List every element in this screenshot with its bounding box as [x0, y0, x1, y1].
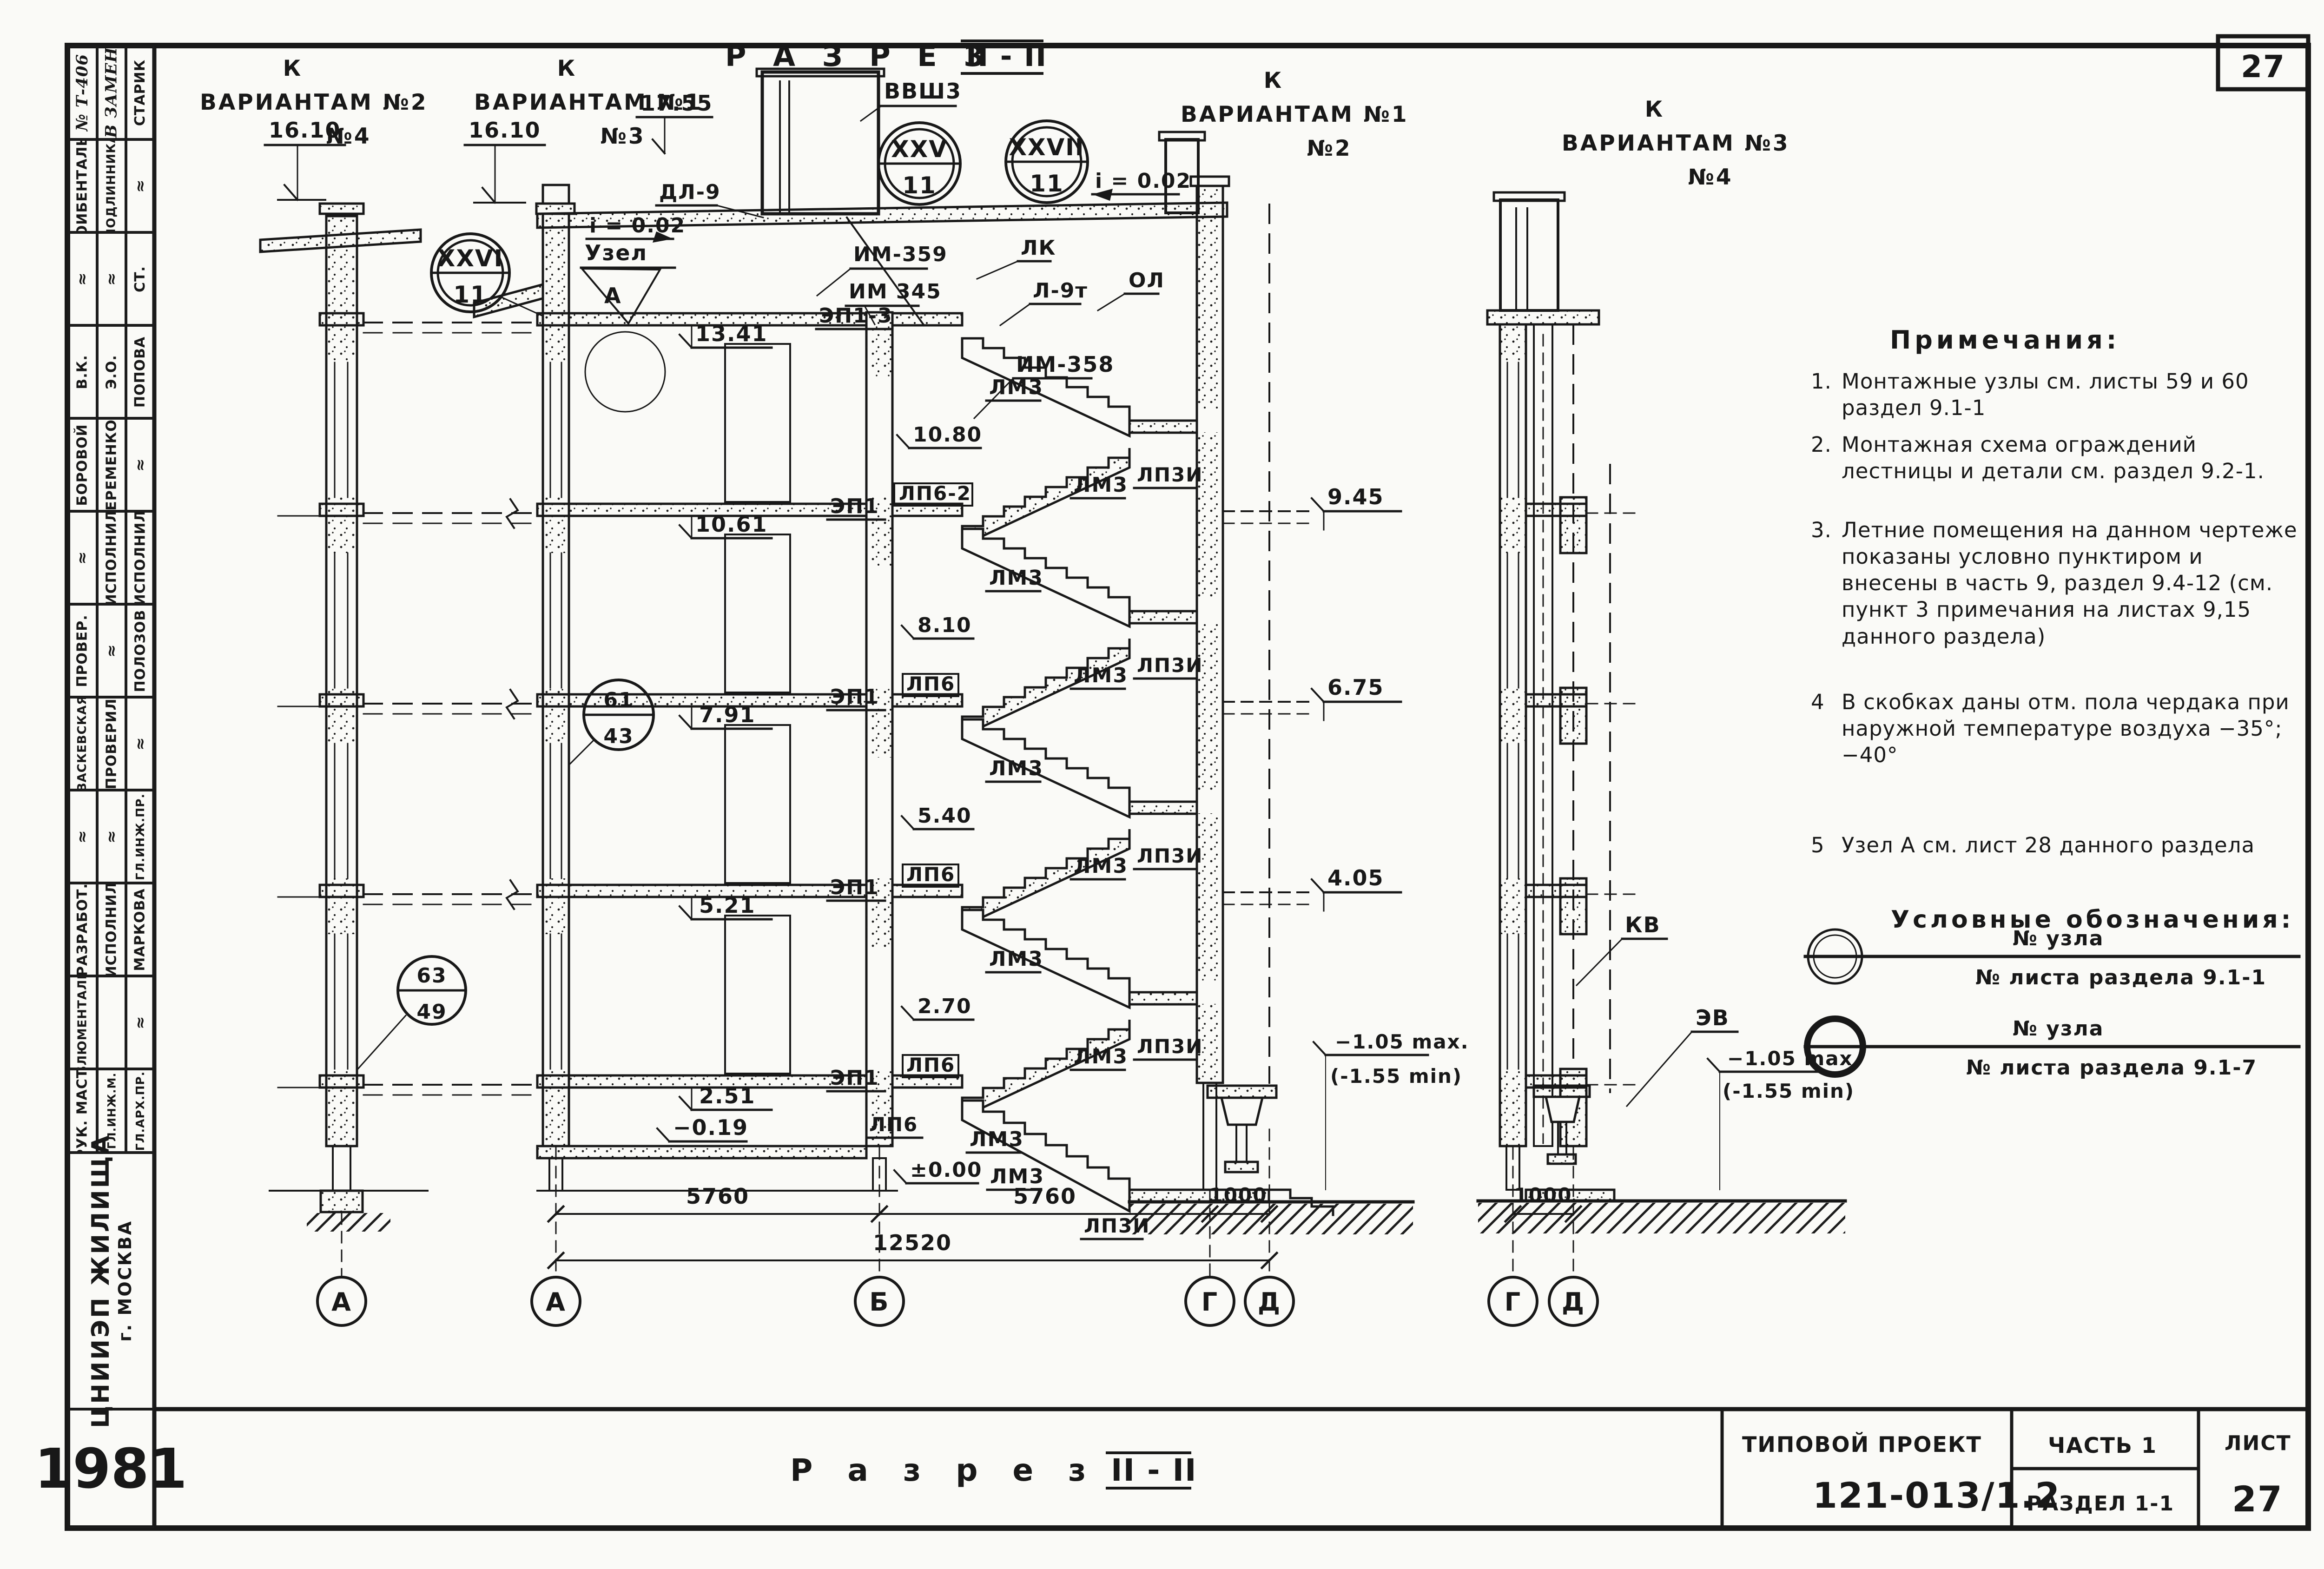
- note-text: Монтажная схема ограждений лестницы и де…: [1842, 431, 2302, 484]
- dim-1000-right: 1000: [1514, 1184, 1572, 1206]
- label-kv: КВ: [1625, 912, 1661, 937]
- stamp-text: ИСПОЛНИЛ: [104, 883, 120, 976]
- stamp-cell: ГЛ.ИНЖ.ПР.: [126, 790, 154, 883]
- stamp-cell: ≈: [97, 604, 126, 697]
- stamp-cell: ИСПОЛНИЛ: [97, 511, 126, 604]
- dim-5760-a: 5760: [686, 1184, 749, 1209]
- stamp-cell: БЛЮМЕНТАЛЬ: [67, 976, 97, 1069]
- variant-b: №2: [1181, 132, 1367, 166]
- stamp-cell: ВАСКЕВСКАЯ: [67, 697, 97, 790]
- elevation-10-61: 10.61: [695, 512, 768, 537]
- midlanding-lp3i-s2: ЛП3И: [1137, 844, 1203, 867]
- note-number: 3.: [1811, 517, 1832, 650]
- label-dl9: ДЛ-9: [659, 180, 721, 204]
- signature: ≈: [102, 830, 121, 844]
- flight-lm3-s2a: ЛМ3: [989, 757, 1043, 780]
- slope-left: i = 0.02: [589, 214, 686, 237]
- stamp-cell: СТ.: [126, 232, 154, 325]
- legend-thin-top: № узла: [2013, 927, 2104, 950]
- variant-b: №4: [200, 120, 386, 154]
- top-title-num: II - II: [966, 39, 1047, 73]
- node-xxvi-sheet: 11: [453, 281, 488, 308]
- elevation-7-91: 7.91: [699, 702, 756, 727]
- dim-1000-main: 1000: [1209, 1184, 1268, 1206]
- landing-lp6-f2: ЛП6: [906, 863, 955, 886]
- stamp-cell: ПОЛОЗОВ: [126, 604, 154, 697]
- sheet-frame: [67, 36, 2308, 1528]
- notes-block: Примечания:: [1811, 325, 2304, 367]
- elevation-9-45: 9.45: [1327, 484, 1384, 509]
- panel-ep1-f3: ЭП1: [830, 685, 879, 709]
- signature: ≈: [131, 737, 150, 751]
- axis-D-main: Д: [1258, 1287, 1281, 1317]
- variant-a: №3: [1744, 131, 1789, 156]
- note-item-3: 3. Летние помещения на данном чертеже по…: [1811, 517, 2302, 650]
- flight-lm3-s3a: ЛМ3: [989, 947, 1043, 971]
- note-number: 2.: [1811, 431, 1832, 484]
- leader-ol: [1098, 294, 1158, 310]
- landing-lp6-f3: ЛП6: [906, 672, 955, 695]
- elevation-mark-16-10-main: [465, 145, 545, 203]
- node-43: 43: [603, 725, 634, 748]
- depth-min-main: (-1.55 min): [1330, 1065, 1462, 1088]
- axis-B-main: Б: [869, 1287, 889, 1317]
- axis-A-main: А: [546, 1287, 566, 1317]
- flight-lm3-g1: ЛМ3: [970, 1127, 1024, 1151]
- label-vvsh3: ВВШ3: [884, 79, 962, 104]
- stamp-text: ПОДЛИННИКА: [105, 139, 119, 232]
- variant-a: №1: [1363, 102, 1408, 127]
- note-text: В скобках даны отм. пола чердака при нар…: [1842, 689, 2302, 768]
- right-fragment: [1478, 192, 1845, 1233]
- wall-D-dashed-loggia: [1223, 204, 1315, 1083]
- stamp-cell: ≈: [67, 511, 97, 604]
- label-im359: ИМ-359: [853, 243, 948, 266]
- signature: ≈: [73, 830, 92, 844]
- variant-name: ВАРИАНТАМ: [1181, 102, 1354, 127]
- node-xxv-sheet: 11: [902, 172, 937, 199]
- main-wall-B: [866, 312, 892, 1146]
- note-item-2: 2. Монтажная схема ограждений лестницы и…: [1811, 431, 2302, 484]
- signature: ≈: [102, 272, 121, 286]
- node-xxv: XXV: [891, 136, 948, 163]
- variant-header-2: К ВАРИАНТАМ №1 №3: [474, 52, 660, 154]
- stamp-cell: [97, 976, 126, 1069]
- depth-min-right: (-1.55 min): [1723, 1080, 1855, 1102]
- label-im358: ИМ-358: [1016, 352, 1114, 377]
- depth-max-main: −1.05 max.: [1335, 1030, 1469, 1053]
- stamp-cell: ПОДЛИННИКА: [97, 139, 126, 232]
- elevation-2-51: 2.51: [699, 1083, 756, 1108]
- main-wall-A: [543, 214, 569, 1146]
- axis-A-lone: А: [331, 1287, 352, 1317]
- stamp-cell: ОИБЕНТАЛЬ: [67, 139, 97, 232]
- stamp-text: ПРОВЕРИЛ: [104, 698, 120, 789]
- project-label: ТИПОВОЙ ПРОЕКТ: [1742, 1432, 1982, 1457]
- notes-title: Примечания:: [1890, 325, 2304, 355]
- leader-ev: [1627, 1032, 1737, 1106]
- axis-D-right: Д: [1562, 1287, 1585, 1317]
- node-49: 49: [416, 1000, 447, 1024]
- note-text: Узел А см. лист 28 данного раздела: [1842, 832, 2255, 858]
- organization-cell: ЦНИИЭП ЖИЛИЩА г. МОСКВА: [67, 1153, 154, 1409]
- sheet-word: ЛИСТ: [2225, 1431, 2291, 1455]
- uzel-flag: [581, 268, 675, 412]
- landing-lp6-f1: ЛП6: [906, 1054, 955, 1076]
- stamp-text: ПРОВЕР.: [74, 614, 91, 687]
- stamp-text: ПОПОВА: [132, 336, 148, 407]
- node-xxvi: XXVI: [437, 245, 503, 272]
- variant-name: ВАРИАНТАМ: [200, 90, 373, 115]
- signature: ≈: [131, 179, 150, 193]
- flight-lm3-s1b: ЛМ3: [1074, 664, 1128, 687]
- section-label: РАЗДЕЛ 1-1: [2027, 1492, 2174, 1516]
- flight-lm3-s0b: ЛМ3: [1074, 473, 1128, 497]
- variant-a: №2: [383, 90, 428, 115]
- flight-lm3-s3b: ЛМ3: [1074, 1045, 1128, 1068]
- note-item-5: 5 Узел А см. лист 28 данного раздела: [1811, 832, 2302, 858]
- variant-b: №3: [474, 120, 660, 154]
- stamp-cell: ИСПОЛНИЛ: [97, 883, 126, 976]
- axis-G-right: Г: [1505, 1287, 1521, 1317]
- stamp-cell: ≈: [97, 790, 126, 883]
- node-xxvii: XXVII: [1009, 134, 1084, 161]
- slope-right: i = 0.02: [1095, 169, 1191, 193]
- elevation-minus-0-19: −0.19: [673, 1115, 748, 1140]
- drawing-sheet: 27 ТИПОВОЙ ПРОЕКТ 121-013/1.2 ЧАСТЬ 1 РА…: [0, 0, 2324, 1569]
- bottom-title-word: Р а з р е з: [790, 1452, 1098, 1488]
- stamp-text: ГЛ.АРХ.ПР.: [133, 1071, 147, 1150]
- variant-header-1: К ВАРИАНТАМ №2 №4: [200, 52, 386, 154]
- node-circle-63-49: [358, 956, 466, 1069]
- midlanding-lp3i-s3: ЛП3И: [1137, 1035, 1203, 1058]
- label-im345: ИМ 345: [849, 280, 942, 303]
- variant-header-4: К ВАРИАНТАМ №3 №4: [1562, 93, 1748, 195]
- stamp-text: БЛЮМЕНТАЛЬ: [75, 976, 89, 1069]
- signature: ≈: [131, 1015, 150, 1029]
- stamp-text: ИСПОЛНИЛ: [132, 511, 148, 604]
- variant-k: К: [474, 52, 660, 86]
- elevation-5-21: 5.21: [699, 893, 756, 918]
- stamp-text: № Т-406: [73, 54, 92, 131]
- stamp-cell: ПРОВЕРИЛ: [97, 697, 126, 790]
- stamp-text: ГЛ.ИНЖ.ПР.: [133, 793, 147, 880]
- stamp-cell: ≈: [126, 139, 154, 232]
- floor-slabs-main: [537, 313, 962, 1191]
- variant-k: К: [200, 52, 386, 86]
- elevation-2-70: 2.70: [918, 995, 972, 1018]
- stamp-cell: Э.О.: [97, 325, 126, 418]
- landing-lp6-2: ЛП6-2: [899, 482, 971, 505]
- variant-k: К: [1181, 64, 1367, 98]
- midlanding-lp3i-s0: ЛП3И: [1137, 463, 1203, 486]
- note-number: 5: [1811, 832, 1832, 858]
- stamp-text: ПОЛОЗОВ: [132, 609, 148, 692]
- elevation-6-75: 6.75: [1327, 675, 1384, 700]
- panel-ep1-f1: ЭП1: [830, 1066, 879, 1090]
- legend-thick-top: № узла: [2013, 1017, 2104, 1041]
- year: 1981: [34, 1437, 187, 1501]
- organization-name: ЦНИИЭП ЖИЛИЩА: [87, 1134, 115, 1428]
- stamp-cell: ≈: [97, 232, 126, 325]
- note-text: Летние помещения на данном чертеже показ…: [1842, 517, 2302, 650]
- node-xxvii-sheet: 11: [1030, 170, 1064, 197]
- note-number: 4: [1811, 689, 1832, 768]
- stamp-cell: РАЗРАБОТ.: [67, 883, 97, 976]
- year-cell: 1981: [67, 1409, 154, 1528]
- stamp-cell: ≈: [126, 697, 154, 790]
- mark-depth-right: [1708, 1059, 1820, 1190]
- flight-lm3-s0a: ЛМ3: [989, 376, 1043, 399]
- panel-ep1-f4: ЭП1: [830, 494, 879, 518]
- flight-lm3-s1a: ЛМ3: [989, 566, 1043, 590]
- sheet-number-block: 27: [2232, 1478, 2283, 1520]
- depth-max-right: −1.05 max.: [1727, 1047, 1862, 1070]
- stamp-text: ЕРЕМЕНКО: [104, 419, 120, 510]
- stamp-cell: МАРКОВА: [126, 883, 154, 976]
- stamp-cell: ≈: [67, 790, 97, 883]
- elevation-13-41: 13.41: [695, 321, 768, 346]
- elevation-0-00: ±0.00: [910, 1158, 982, 1182]
- leader-l9t: [1000, 304, 1080, 325]
- dim-5760-b: 5760: [1013, 1184, 1076, 1209]
- note-item-1: 1. Монтажные узлы см. листы 59 и 60 разд…: [1811, 368, 2302, 421]
- mark-depth-main: [1314, 1042, 1428, 1190]
- label-l9t: Л-9т: [1033, 279, 1088, 303]
- balcony-dashed-lines-left: [278, 323, 535, 1095]
- node-61: 61: [603, 688, 634, 712]
- part-label: ЧАСТЬ 1: [2048, 1433, 2157, 1458]
- elevation-4-05: 4.05: [1327, 865, 1384, 890]
- node-63: 63: [416, 964, 447, 988]
- note-item-4: 4 В скобках даны отм. пола чердака при н…: [1811, 689, 2302, 768]
- stamp-cell: ЕРЕМЕНКО: [97, 418, 126, 511]
- flight-lm3-s2b: ЛМ3: [1074, 854, 1128, 878]
- stamp-cell: БОРОВОЙ: [67, 418, 97, 511]
- panel-ep1-f2: ЭП1: [830, 876, 879, 899]
- label-ev: ЭВ: [1696, 1005, 1730, 1030]
- stamp-text: В ЗАМЕН: [102, 47, 121, 138]
- variant-b: №4: [1562, 161, 1748, 195]
- dim-12520: 12520: [873, 1230, 952, 1255]
- stamp-cell: СТАРИК: [126, 46, 154, 139]
- stamp-cell: В.К.: [67, 325, 97, 418]
- stamp-cell: № Т-406: [67, 46, 97, 139]
- stamp-cell: В ЗАМЕН: [97, 46, 126, 139]
- drawing-canvas: 27 ТИПОВОЙ ПРОЕКТ 121-013/1.2 ЧАСТЬ 1 РА…: [0, 0, 2324, 1569]
- bottom-title-num: II - II: [1111, 1452, 1197, 1488]
- elevation-8-10: 8.10: [918, 613, 972, 637]
- elevation-5-40: 5.40: [918, 804, 972, 828]
- uzel-word: Узел: [585, 240, 647, 265]
- stamp-text: БОРОВОЙ: [74, 424, 91, 506]
- label-lk: ЛК: [1021, 236, 1056, 260]
- stamp-text: Э.О.: [104, 355, 120, 389]
- stamp-cell: ПРОВЕР.: [67, 604, 97, 697]
- sheet-number-corner: 27: [2241, 49, 2285, 85]
- note-number: 1.: [1811, 368, 1832, 421]
- stamp-text: В.К.: [74, 355, 91, 389]
- axis-bubbles-main: [317, 1277, 1294, 1325]
- variant-header-3: К ВАРИАНТАМ №1 №2: [1181, 64, 1367, 166]
- stamp-cell: ≈: [67, 232, 97, 325]
- midlanding-lp3i-ground: ЛП3И: [1084, 1214, 1150, 1237]
- signature: ≈: [73, 272, 92, 286]
- landing-lp6-ground: ЛП6: [869, 1113, 918, 1136]
- note-text: Монтажные узлы см. листы 59 и 60 раздел …: [1842, 368, 2302, 421]
- stamp-text: РАЗРАБОТ.: [74, 883, 91, 976]
- stamp-text: ОИБЕНТАЛЬ: [74, 139, 91, 232]
- stamp-text: МАРКОВА: [132, 888, 148, 971]
- stamp-text: СТ.: [132, 266, 148, 292]
- stamp-text: ИСПОЛНИЛ: [104, 511, 120, 604]
- variant-name: ВАРИАНТАМ: [474, 90, 647, 115]
- variant-k: К: [1562, 93, 1748, 127]
- signature: ≈: [131, 458, 150, 472]
- stamp-cell: ИСПОЛНИЛ: [126, 511, 154, 604]
- axis-G-main: Г: [1202, 1287, 1218, 1317]
- stamp-cell: ≈: [126, 976, 154, 1069]
- stamp-cell: ПОПОВА: [126, 325, 154, 418]
- signature: ≈: [73, 551, 92, 565]
- midlanding-lp3i-s1: ЛП3И: [1137, 654, 1203, 677]
- stamp-text: СТАРИК: [132, 59, 148, 125]
- variant-a: №1: [657, 90, 702, 115]
- panel-ep1-3: ЭП1-3: [819, 304, 893, 328]
- section-left-wall: [260, 204, 428, 1232]
- legend-thick-bottom: № листа раздела 9.1-7: [1966, 1056, 2257, 1080]
- leader-lk: [977, 261, 1050, 279]
- elevation-10-80: 10.80: [913, 423, 982, 447]
- label-ol: ОЛ: [1129, 269, 1165, 292]
- variant-name: ВАРИАНТАМ: [1562, 131, 1735, 156]
- signature: ≈: [102, 644, 121, 658]
- stamp-text: ВАСКЕВСКАЯ: [75, 697, 89, 790]
- project-number: 121-013/1.2: [1813, 1475, 2060, 1516]
- organization-city: г. МОСКВА: [115, 1134, 135, 1428]
- leader-kv: [1577, 939, 1667, 985]
- stamp-cell: ≈: [126, 418, 154, 511]
- leader-vvsh3: [861, 106, 956, 121]
- legend-thin-bottom: № листа раздела 9.1-1: [1975, 966, 2266, 989]
